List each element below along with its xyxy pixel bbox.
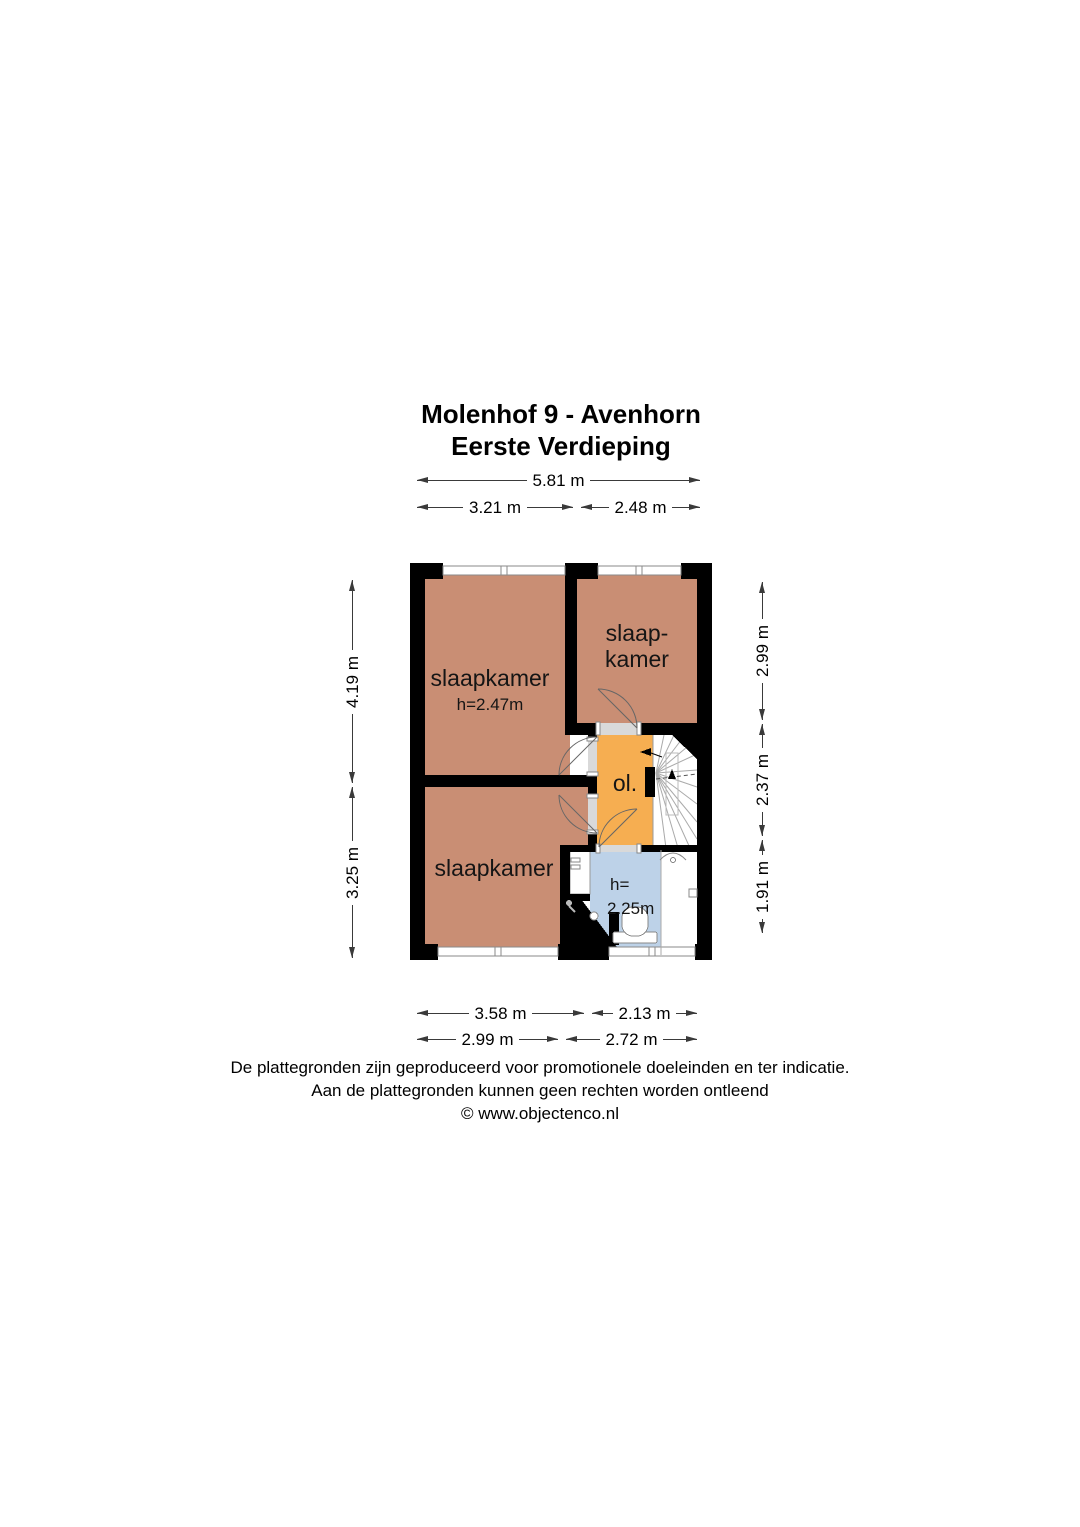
wall-interior bbox=[637, 723, 697, 735]
dim-label: 2.37 m bbox=[753, 748, 773, 812]
door-opening bbox=[598, 723, 637, 735]
closet-shelf-icon bbox=[571, 865, 580, 869]
wall-left bbox=[410, 563, 425, 960]
room-height-bedroom-top-left: h=2.47m bbox=[457, 695, 524, 714]
door-opening bbox=[598, 845, 637, 852]
wall-closet bbox=[560, 852, 570, 894]
window-mullion bbox=[495, 947, 501, 956]
dim-label: 1.91 m bbox=[753, 855, 773, 919]
wall-interior bbox=[565, 577, 577, 728]
room-label-bedroom-top-right: slaap- bbox=[606, 620, 669, 646]
footer-disclaimer: De plattegronden zijn geproduceerd voor … bbox=[0, 1056, 1080, 1125]
door-jamb bbox=[637, 844, 641, 853]
wall-interior bbox=[410, 775, 597, 787]
dim-label: 3.21 m bbox=[463, 498, 527, 518]
wall-interior bbox=[588, 775, 597, 795]
wall-pier bbox=[565, 563, 598, 579]
wall-fixture-icon bbox=[689, 889, 697, 897]
wall-pier bbox=[410, 563, 443, 579]
wall-interior bbox=[560, 845, 598, 852]
door-opening bbox=[588, 795, 597, 833]
copyright-line: © www.objectenco.nl bbox=[0, 1102, 1080, 1125]
shower-head-icon bbox=[566, 900, 572, 906]
dim-right-upper: 2.99 m bbox=[762, 582, 763, 720]
door-jamb bbox=[596, 722, 600, 735]
dim-label: 2.99 m bbox=[456, 1030, 520, 1050]
bedroom-bottom-floor bbox=[420, 779, 592, 849]
dim-right-lower: 1.91 m bbox=[762, 840, 763, 933]
window-mullion bbox=[636, 566, 642, 575]
closet bbox=[570, 850, 590, 894]
closet-shelf-icon bbox=[571, 858, 580, 862]
dim-left-upper: 4.19 m bbox=[352, 580, 353, 783]
wall-pier bbox=[681, 563, 712, 579]
shower-area bbox=[661, 850, 697, 955]
page-title: Molenhof 9 - Avenhorn Eerste Verdieping bbox=[360, 398, 762, 462]
dim-label: 2.72 m bbox=[600, 1030, 664, 1050]
title-floor: Eerste Verdieping bbox=[360, 430, 762, 462]
door-jamb bbox=[587, 772, 598, 776]
dim-label: 2.99 m bbox=[753, 619, 773, 683]
dim-left-lower: 3.25 m bbox=[352, 787, 353, 958]
room-height-bathroom: h= bbox=[610, 875, 629, 894]
dim-label: 3.25 m bbox=[343, 841, 363, 905]
dim-right-middle: 2.37 m bbox=[762, 724, 763, 836]
dim-label: 3.58 m bbox=[469, 1004, 533, 1024]
wall-interior bbox=[588, 833, 597, 845]
dim-top-right: 2.48 m bbox=[581, 507, 700, 508]
dim-label: 5.81 m bbox=[527, 471, 591, 491]
dim-top-total: 5.81 m bbox=[417, 480, 700, 481]
wall-pier bbox=[410, 944, 438, 960]
disclaimer-line-2: Aan de plattegronden kunnen geen rechten… bbox=[0, 1079, 1080, 1102]
dim-label: 4.19 m bbox=[343, 650, 363, 714]
dim-bottom-row2-right: 2.72 m bbox=[566, 1039, 697, 1040]
dim-bottom-row2-left: 2.99 m bbox=[417, 1039, 558, 1040]
title-address: Molenhof 9 - Avenhorn bbox=[360, 398, 762, 430]
dim-top-left: 3.21 m bbox=[417, 507, 573, 508]
room-label-bedroom-bottom: slaapkamer bbox=[435, 855, 554, 881]
room-label-landing: ol. bbox=[613, 770, 637, 796]
door-jamb bbox=[637, 722, 641, 735]
dim-bottom-row1-right: 2.13 m bbox=[592, 1013, 697, 1014]
floorplan-page: Molenhof 9 - Avenhorn Eerste Verdieping … bbox=[0, 0, 1080, 1527]
sink-drain-icon bbox=[671, 858, 676, 863]
wall-right bbox=[697, 563, 712, 960]
wall-pier bbox=[695, 944, 712, 960]
dim-bottom-row1-left: 3.58 m bbox=[417, 1013, 584, 1014]
wall-stair-stub bbox=[645, 767, 655, 797]
wall-interior bbox=[637, 845, 697, 852]
disclaimer-line-1: De plattegronden zijn geproduceerd voor … bbox=[0, 1056, 1080, 1079]
room-height-bathroom: 2.25m bbox=[607, 899, 654, 918]
floor-plan: slaapkamer h=2.47m slaap- kamer slaapkam… bbox=[410, 563, 712, 960]
window-mullion bbox=[649, 947, 655, 956]
dim-label: 2.13 m bbox=[613, 1004, 677, 1024]
room-label-bedroom-top-right: kamer bbox=[605, 646, 669, 672]
room-label-bedroom-top-left: slaapkamer bbox=[431, 665, 550, 691]
dim-label: 2.48 m bbox=[609, 498, 673, 518]
door-jamb bbox=[587, 794, 598, 798]
window-mullion bbox=[501, 566, 507, 575]
drain-icon bbox=[590, 912, 598, 920]
